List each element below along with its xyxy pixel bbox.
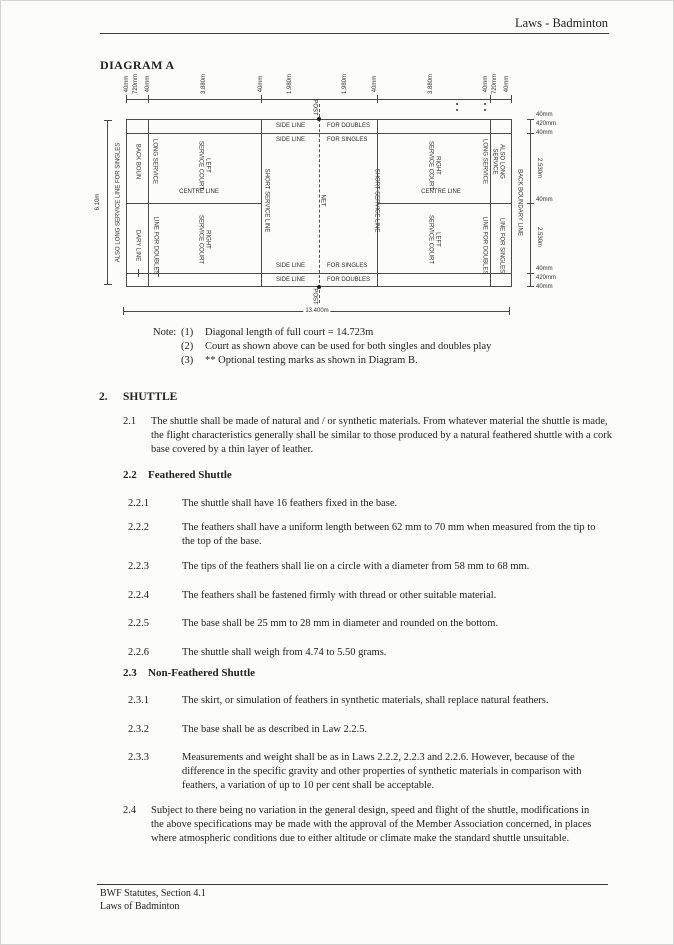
back-boundary-label-bottom: DARY LINE — [134, 226, 141, 266]
for-singles-label: FOR SINGLES — [327, 263, 367, 270]
testing-mark-dot — [456, 103, 458, 105]
testing-mark-dot — [484, 109, 486, 111]
dimension-tick — [527, 273, 534, 274]
dim-label: 40mm — [536, 112, 553, 119]
dimension-tick — [509, 307, 510, 315]
law-2-2-4: 2.2.4 The feathers shall be fastened fir… — [128, 589, 617, 603]
law-2-3-2: 2.3.2 The base shall be as described in … — [128, 723, 617, 737]
footer-rule — [97, 884, 608, 885]
back-boundary-line-label: BACK BOUNDARY LINE — [516, 158, 523, 248]
court-width-dim: 6.10m — [95, 187, 103, 217]
right-service-court-label: RIGHT SERVICE COURT — [198, 212, 211, 268]
post-dot-top — [317, 117, 321, 121]
testing-mark-tick — [138, 269, 139, 277]
for-doubles-label: FOR DOUBLES — [327, 123, 370, 130]
footer: BWF Statutes, Section 4.1 Laws of Badmin… — [100, 887, 206, 913]
note-text: Court as shown above can be used for bot… — [205, 340, 491, 354]
centre-line-right-segment — [377, 203, 512, 204]
dim-label: 40mm — [504, 69, 512, 99]
line-for-doubles-label: LINE FOR DOUBLES — [152, 217, 159, 275]
dim-label: 720mm — [492, 69, 500, 99]
footer-line1: BWF Statutes, Section 4.1 — [100, 887, 206, 900]
document-page: Laws - Badminton DIAGRAM A 40mm 720mm 40… — [0, 0, 674, 945]
dim-label: 40mm — [536, 130, 553, 137]
dim-label: 420mm — [536, 121, 556, 128]
header-title: Laws - Badminton — [515, 16, 608, 31]
post-label-bottom: POST — [311, 286, 318, 308]
also-long-service-label: ALSO LONG SERVICE — [498, 131, 505, 193]
dim-label: 720mm — [133, 69, 141, 99]
dim-label: 40mm — [483, 69, 491, 99]
dimension-cap — [104, 284, 112, 285]
note-block: Note: (1) Diagonal length of full court … — [153, 326, 491, 368]
note-text: ** Optional testing marks as shown in Di… — [205, 354, 418, 368]
law-2-2-1: 2.2.1 The shuttle shall have 16 feathers… — [128, 497, 617, 511]
note-row: Note: (1) Diagonal length of full court … — [153, 326, 491, 340]
subsection-2-2: 2.2 Feathered Shuttle — [123, 469, 232, 481]
dimension-tick — [527, 133, 534, 134]
note-num: (2) — [181, 340, 205, 354]
side-line-label: SIDE LINE — [276, 137, 305, 144]
header-rule — [100, 33, 609, 34]
dim-label: 40mm — [536, 266, 553, 273]
centre-line-label: CENTRE LINE — [421, 189, 461, 196]
dim-label: 3.880m — [201, 69, 209, 99]
law-2-3-3: 2.3.3 Measurements and weight shall be a… — [128, 751, 612, 793]
law-2-2-3: 2.2.3 The tips of the feathers shall lie… — [128, 560, 617, 574]
testing-mark-tick — [158, 269, 159, 277]
note-row: (2) Court as shown above can be used for… — [153, 340, 491, 354]
section-heading: 2. SHUTTLE — [99, 391, 177, 403]
dimension-cap — [104, 120, 112, 121]
dim-label: 1.980m — [287, 69, 295, 99]
also-long-service-singles-label: ALSO LONG SERVICE LINE FOR SINGLES — [116, 143, 123, 263]
dim-label: 40mm — [145, 69, 153, 99]
back-boundary-label-top: BACK BOUN — [134, 142, 141, 182]
short-service-line-label: SHORT SERVICE LINE — [373, 169, 380, 233]
long-service-label: LONG SERVICE — [481, 138, 488, 186]
left-dimension-line — [107, 121, 108, 285]
dimension-tick — [527, 119, 534, 120]
section-title: SHUTTLE — [123, 391, 177, 403]
dim-label: 40mm — [372, 69, 380, 99]
note-label: Note: — [153, 326, 181, 340]
testing-mark-dot — [484, 103, 486, 105]
top-dimension-line — [126, 99, 512, 100]
law-2-2-2: 2.2.2 The feathers shall have a uniform … — [128, 521, 602, 549]
law-2-4: 2.4 Subject to there being no variation … — [123, 804, 603, 846]
side-line-label: SIDE LINE — [276, 263, 305, 270]
testing-mark-dot — [456, 109, 458, 111]
right-service-court-label: RIGHT SERVICE COURT — [428, 138, 441, 194]
law-2-2-5: 2.2.5 The base shall be 25 mm to 28 mm i… — [128, 617, 617, 631]
court-length-dim: 13.400m — [303, 308, 330, 315]
dimension-tick — [527, 203, 534, 204]
subsection-2-3: 2.3 Non-Feathered Shuttle — [123, 667, 255, 679]
dim-label: 40mm — [258, 69, 266, 99]
dim-label: 2.530m — [534, 220, 542, 254]
long-service-label: LONG SERVICE — [151, 138, 158, 186]
note-row: (3) ** Optional testing marks as shown i… — [153, 354, 491, 368]
dim-label: 2.530m — [534, 151, 542, 185]
dimension-tick — [123, 307, 124, 315]
law-2-1: 2.1 The shuttle shall be made of natural… — [123, 415, 621, 457]
centre-line-label: CENTRE LINE — [179, 189, 219, 196]
line-for-singles-label: LINE FOR SINGLES — [498, 217, 505, 275]
section-number: 2. — [99, 391, 123, 403]
for-doubles-label: FOR DOUBLES — [327, 277, 370, 284]
dim-label: 3.880m — [428, 69, 436, 99]
footer-line2: Laws of Badminton — [100, 900, 206, 913]
dimension-tick — [527, 286, 534, 287]
dim-label: 40mm — [536, 284, 553, 291]
note-num: (1) — [181, 326, 205, 340]
side-line-label: SIDE LINE — [276, 123, 305, 130]
line-for-doubles-label: LINE FOR DOUBLES — [481, 217, 488, 275]
post-dot-bottom — [317, 285, 321, 289]
law-2-2-6: 2.2.6 The shuttle shall weigh from 4.74 … — [128, 646, 617, 660]
dim-label: 420mm — [536, 275, 556, 282]
dim-label: 1.980m — [342, 69, 350, 99]
dim-label: 40mm — [536, 197, 553, 204]
centre-line-left-segment — [126, 203, 261, 204]
left-service-court-label: LEFT SERVICE COURT — [428, 212, 441, 268]
post-label-top: POST — [311, 97, 318, 119]
law-2-3-1: 2.3.1 The skirt, or simulation of feathe… — [128, 694, 617, 708]
for-singles-label: FOR SINGLES — [327, 137, 367, 144]
short-service-line-label: SHORT SERVICE LINE — [263, 169, 270, 233]
net-label: NET — [319, 191, 326, 211]
note-text: Diagonal length of full court = 14.723m — [205, 326, 373, 340]
dim-label: 40mm — [124, 69, 132, 99]
left-service-court-label: LEFT SERVICE COURT — [198, 138, 211, 194]
side-line-label: SIDE LINE — [276, 277, 305, 284]
note-num: (3) — [181, 354, 205, 368]
